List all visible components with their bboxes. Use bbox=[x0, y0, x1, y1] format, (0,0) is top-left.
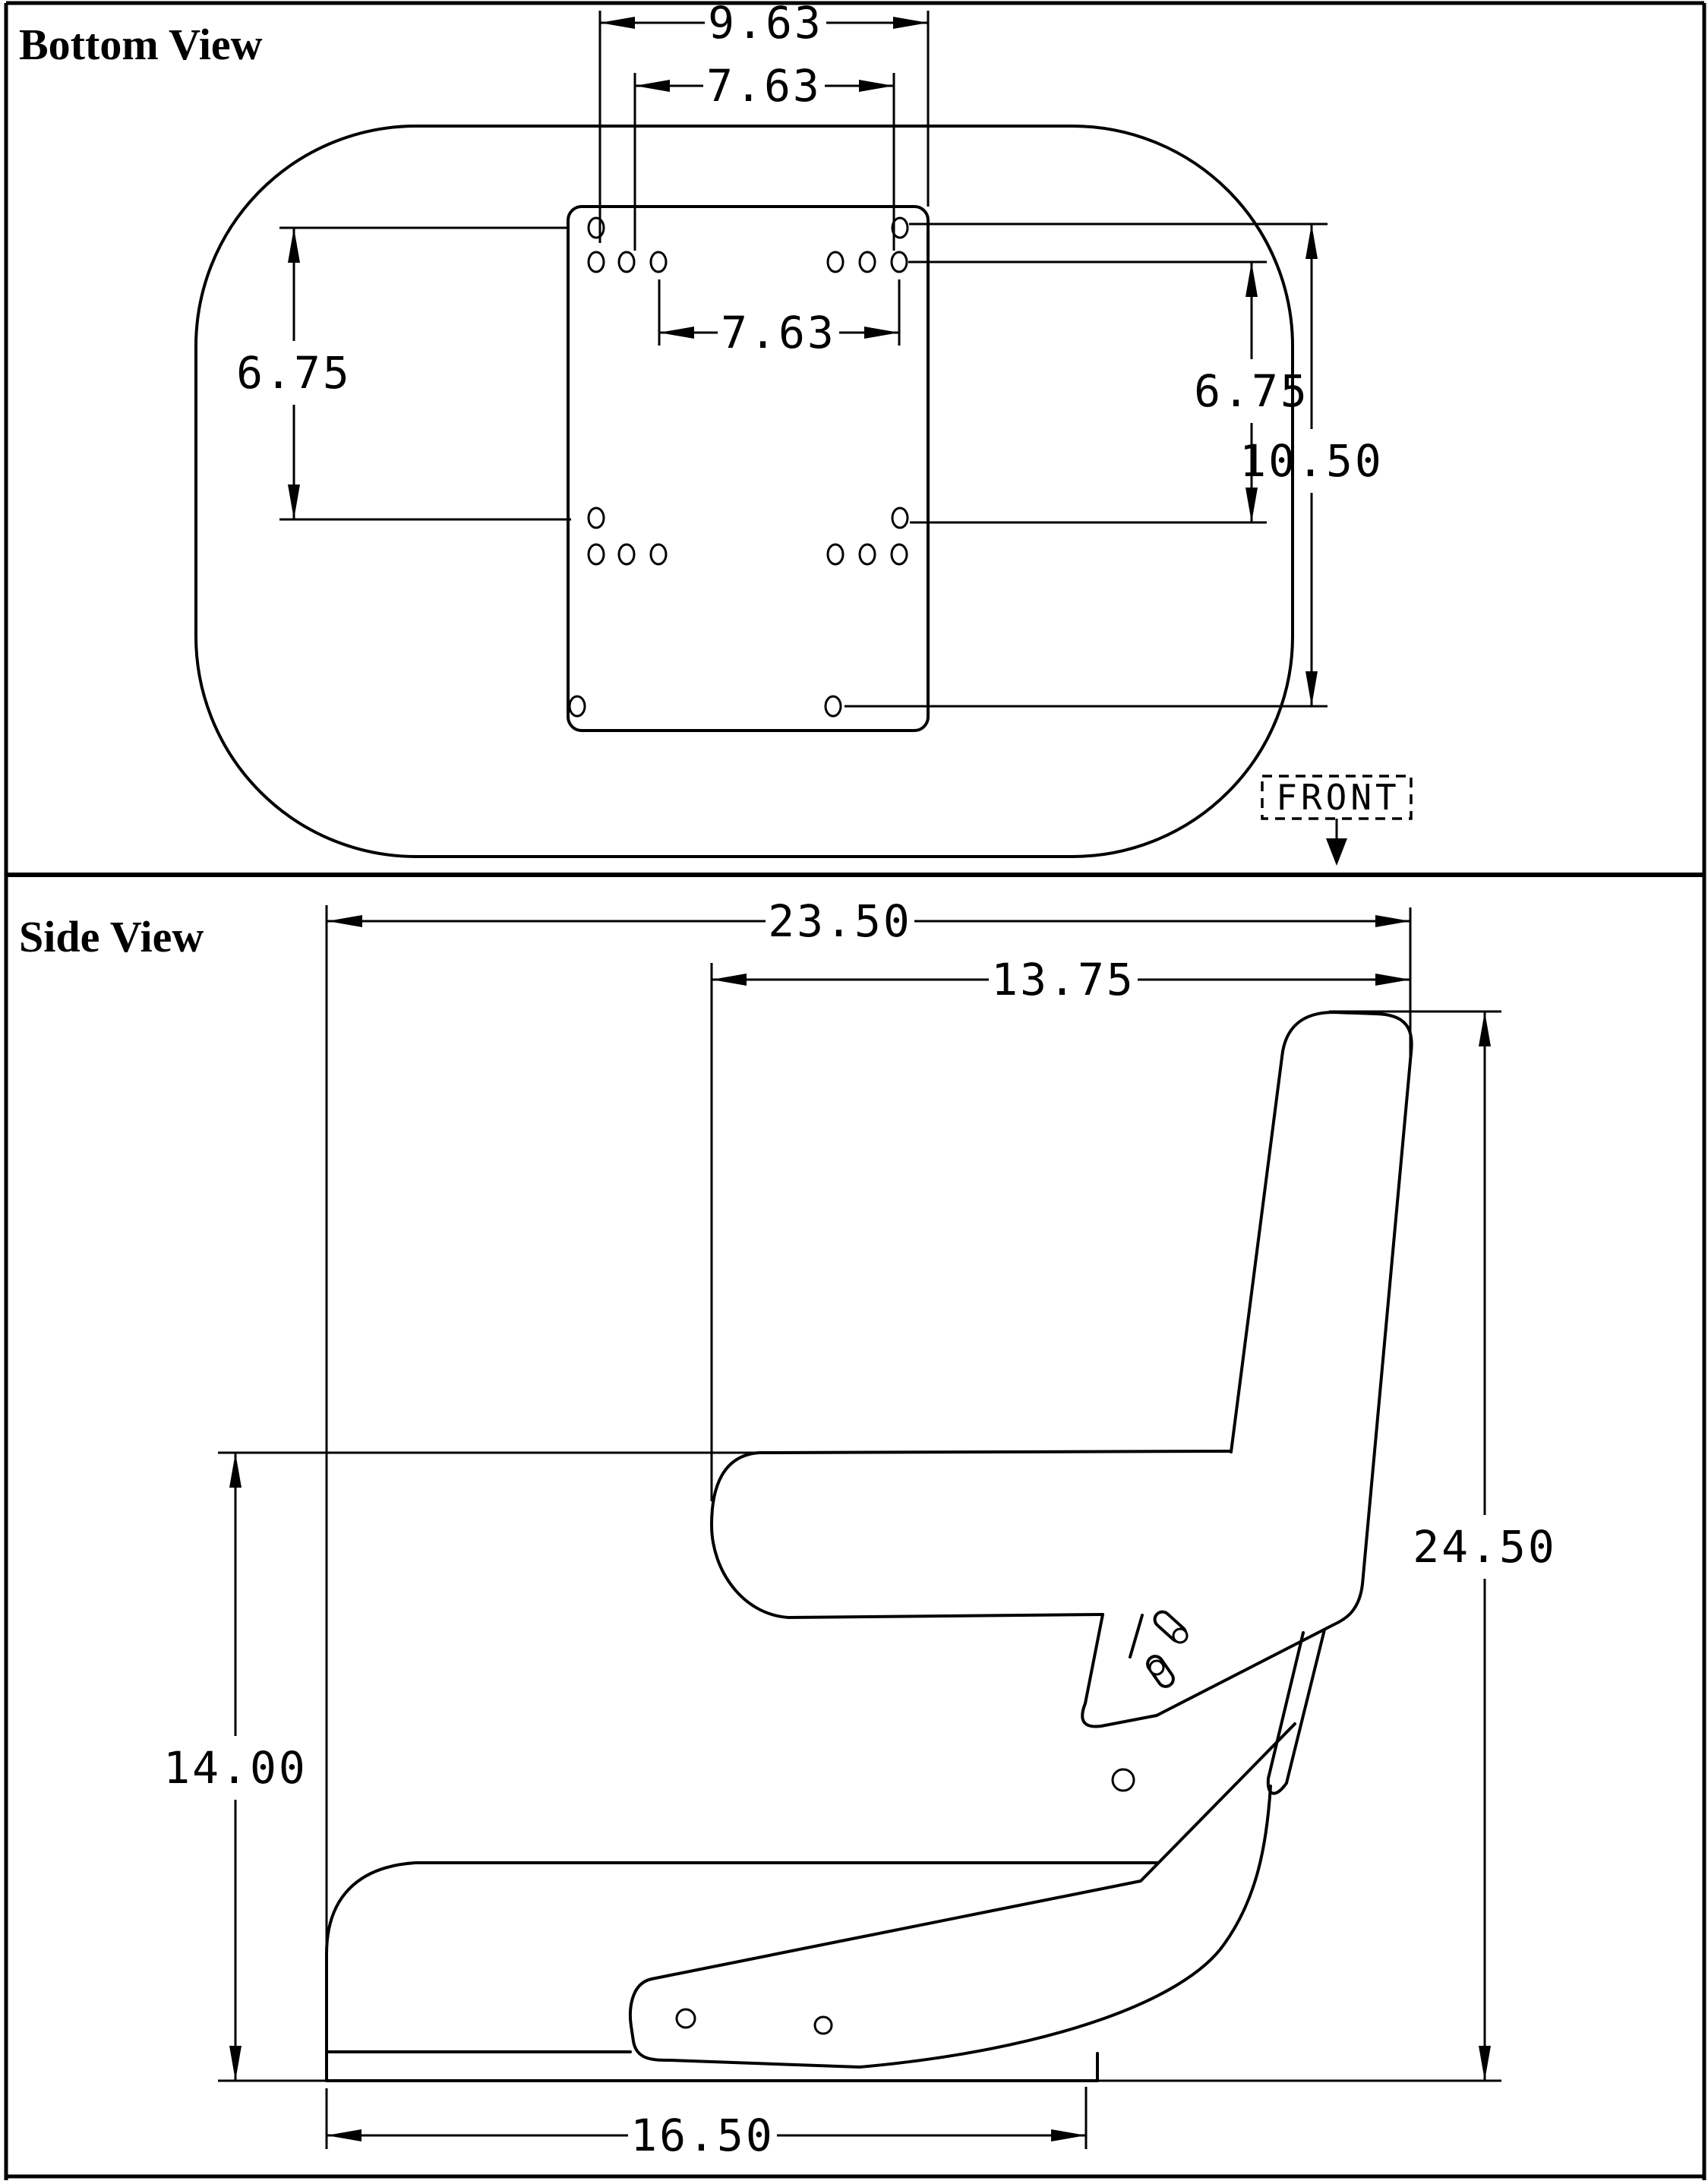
mounting-hole bbox=[828, 252, 843, 272]
arrowhead-down bbox=[229, 2046, 242, 2081]
armrest-front-cap bbox=[712, 1453, 788, 1617]
dim-inner-width: 7.63 bbox=[635, 60, 894, 251]
slot-pin bbox=[1173, 1629, 1187, 1643]
mounting-hole bbox=[589, 218, 604, 238]
arrowhead-right bbox=[864, 327, 899, 339]
arrowhead-right bbox=[1375, 915, 1410, 927]
front-arrow-icon bbox=[1326, 838, 1347, 866]
arrowhead-right bbox=[1051, 2129, 1086, 2141]
mounting-hole bbox=[826, 696, 841, 716]
mounting-hole bbox=[651, 544, 666, 564]
dimension-value: 9.63 bbox=[708, 0, 823, 49]
dimension-value: 16.50 bbox=[630, 2110, 775, 2161]
cushion-front-corner bbox=[327, 1863, 415, 1954]
mounting-hole bbox=[892, 544, 907, 564]
slot-pin bbox=[1150, 1661, 1163, 1674]
dimension-value: 6.75 bbox=[236, 347, 352, 399]
seat-profile bbox=[327, 1012, 1412, 2081]
arrowhead-up bbox=[1245, 262, 1258, 297]
seat-bottom-outline bbox=[196, 126, 1293, 857]
armrest-support-edge bbox=[1130, 1615, 1142, 1657]
mounting-hole bbox=[828, 544, 843, 564]
dim-overall-height: 24.50 bbox=[1097, 1012, 1557, 2081]
arrowhead-down bbox=[1305, 671, 1318, 706]
arrowhead-left bbox=[327, 2129, 361, 2141]
bottom-view-title: Bottom View bbox=[19, 20, 263, 69]
arrowhead-right bbox=[859, 80, 894, 92]
mounting-hole bbox=[619, 252, 634, 272]
dimension-value: 14.00 bbox=[163, 1742, 308, 1794]
technical-drawing: Bottom View bbox=[0, 0, 1708, 2184]
mounting-hole bbox=[860, 252, 875, 272]
arrowhead-down bbox=[1245, 488, 1258, 522]
mounting-hole bbox=[860, 544, 875, 564]
dim-overall-depth: 23.50 bbox=[327, 895, 1410, 1954]
backrest-outline bbox=[1157, 1012, 1412, 1715]
sheet-frame bbox=[6, 3, 1704, 2180]
arrowhead-down bbox=[1479, 2046, 1491, 2081]
mounting-hole bbox=[892, 252, 907, 272]
arrowhead-up bbox=[229, 1453, 242, 1488]
dimension-value: 13.75 bbox=[991, 954, 1135, 1005]
arrowhead-left bbox=[327, 915, 362, 927]
support-arm-foot-cap bbox=[630, 1979, 670, 2060]
drawing-sheet: Bottom View bbox=[0, 0, 1708, 2184]
arrowhead-left bbox=[659, 327, 694, 339]
recline-bracket-edge bbox=[1082, 1703, 1157, 1727]
mounting-hole bbox=[892, 508, 908, 528]
arrowhead-up bbox=[1305, 224, 1318, 259]
bottom-view: Bottom View bbox=[19, 0, 1411, 866]
foot-bolt-hole bbox=[677, 2009, 695, 2028]
backrest-front-edge bbox=[1231, 1057, 1282, 1452]
arrowhead-left bbox=[712, 974, 747, 986]
front-label: FRONT bbox=[1276, 777, 1400, 818]
arrowhead-up bbox=[288, 228, 300, 263]
dim-armrest-height: 14.00 bbox=[163, 1453, 756, 2081]
mounting-hole bbox=[570, 696, 585, 716]
mounting-hole bbox=[589, 508, 604, 528]
armrest-support-edge bbox=[1085, 1614, 1103, 1703]
dimension-value: 24.50 bbox=[1413, 1521, 1557, 1573]
dim-left-height: 6.75 bbox=[236, 228, 571, 519]
support-arm-bottom-edge bbox=[670, 1786, 1271, 2067]
arrowhead-left bbox=[635, 80, 670, 92]
dim-outer-height: 10.50 bbox=[845, 224, 1384, 706]
dimension-value: 6.75 bbox=[1194, 365, 1309, 417]
pivot-hole bbox=[1113, 1769, 1134, 1791]
dimension-value: 7.63 bbox=[706, 60, 822, 112]
mounting-hole bbox=[619, 544, 634, 564]
side-view: Side View bbox=[19, 895, 1557, 2161]
arrowhead-right bbox=[1375, 974, 1410, 986]
arrowhead-left bbox=[600, 17, 635, 29]
armrest-bottom-edge bbox=[788, 1614, 1103, 1617]
mounting-holes bbox=[570, 218, 908, 716]
adjustment-slots bbox=[1113, 1609, 1189, 1791]
mounting-hole bbox=[651, 252, 666, 272]
back-post-edge bbox=[1287, 1630, 1324, 1783]
mounting-hole bbox=[589, 544, 604, 564]
arrowhead-down bbox=[288, 484, 300, 519]
dimension-value: 10.50 bbox=[1239, 435, 1384, 487]
mounting-plate bbox=[568, 207, 928, 731]
armrest-top-edge bbox=[759, 1451, 1231, 1453]
support-arm-top-edge bbox=[652, 1724, 1295, 1979]
dim-base-depth: 16.50 bbox=[327, 2087, 1086, 2161]
dim-back-depth: 13.75 bbox=[712, 954, 1410, 1501]
foot-bolt-hole bbox=[815, 2017, 832, 2034]
arrowhead-up bbox=[1479, 1012, 1491, 1046]
mounting-hole bbox=[589, 252, 604, 272]
dim-plate-inner-width: 7.63 bbox=[659, 279, 899, 358]
side-view-title: Side View bbox=[19, 912, 204, 961]
dimension-value: 23.50 bbox=[768, 895, 912, 947]
front-marker: FRONT bbox=[1262, 776, 1411, 866]
dimension-value: 7.63 bbox=[721, 307, 836, 358]
arrowhead-right bbox=[893, 17, 928, 29]
